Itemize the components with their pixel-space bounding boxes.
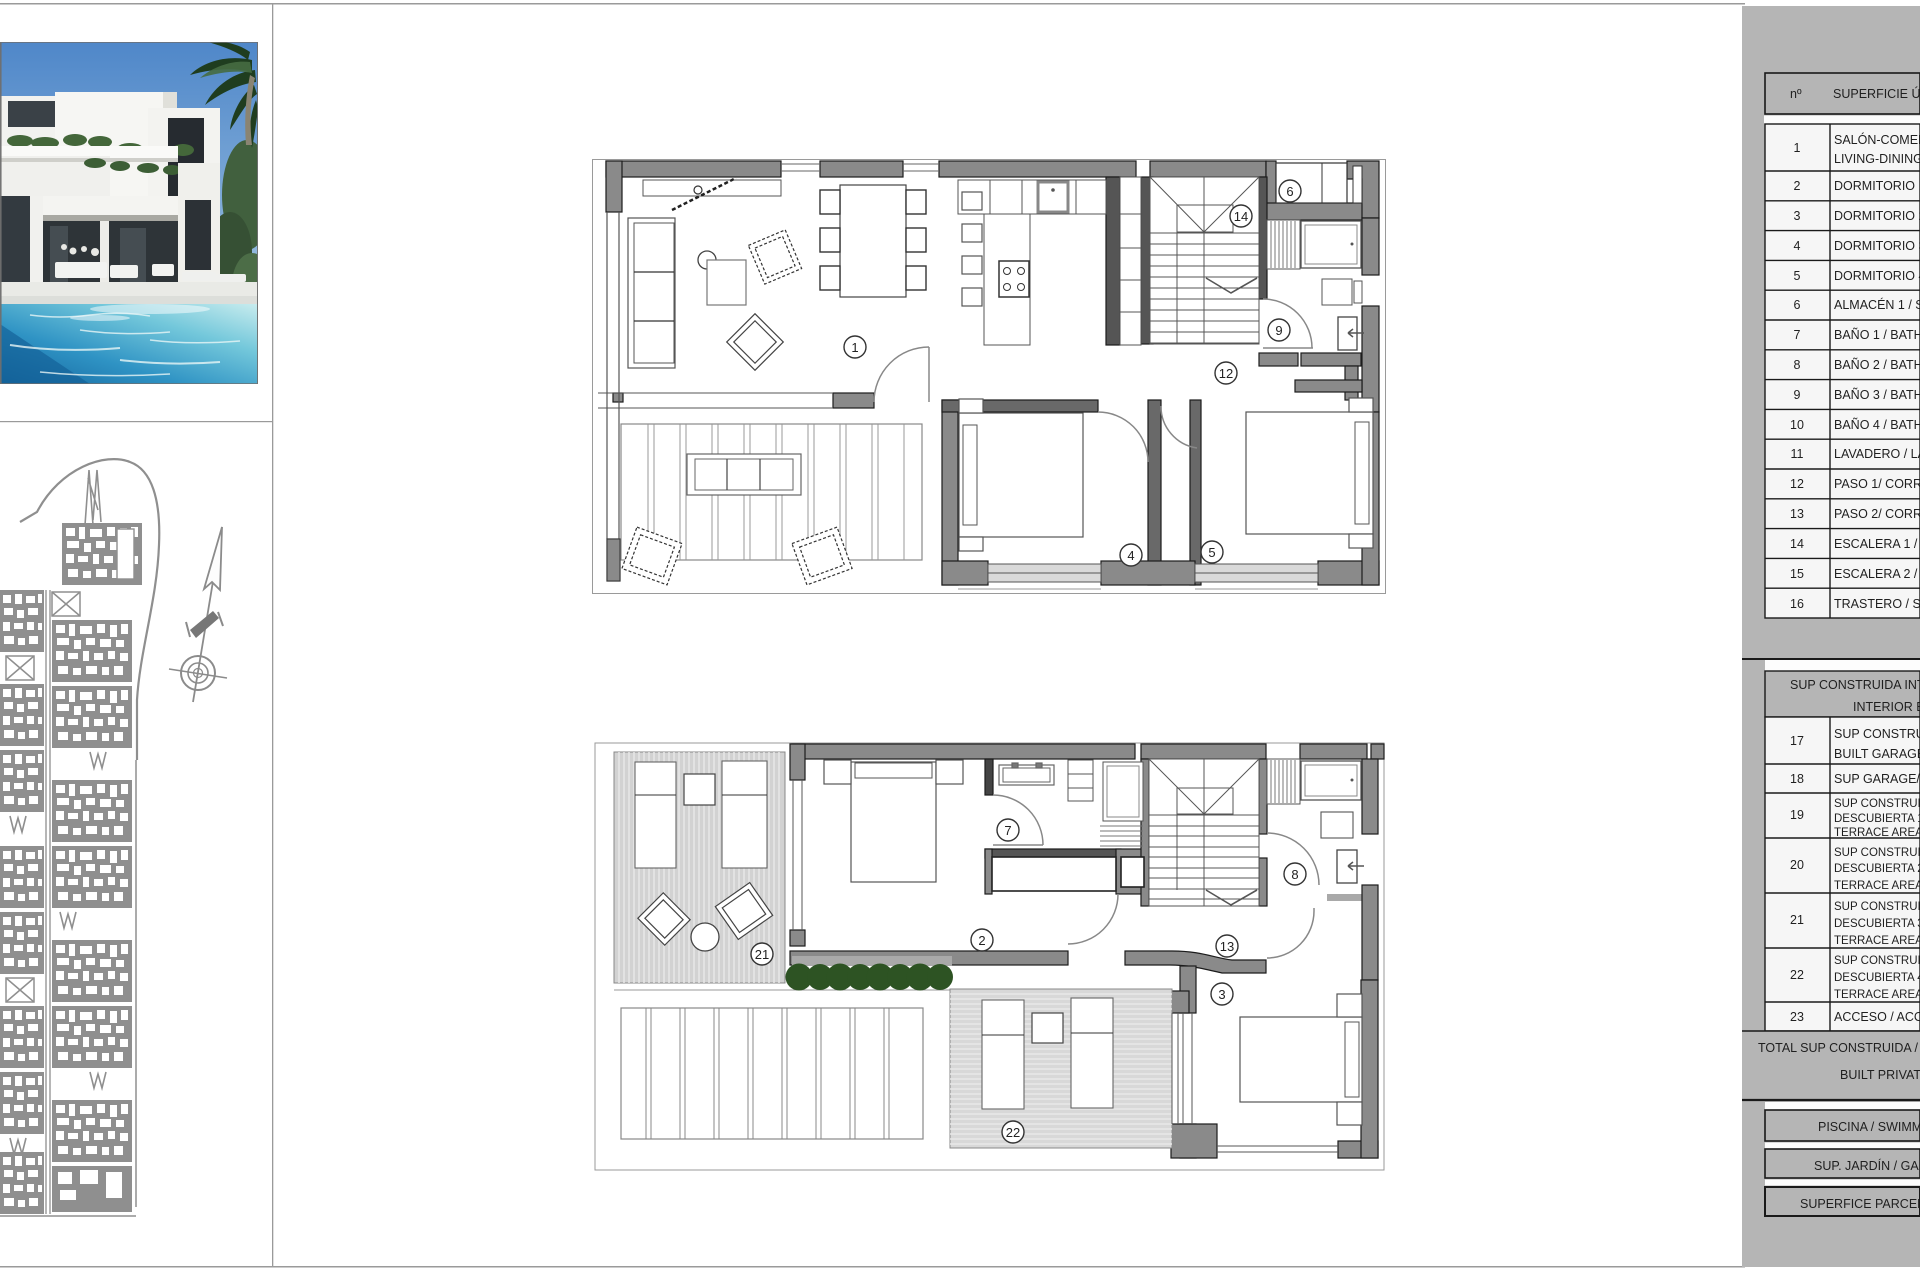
- svg-text:5: 5: [1794, 269, 1801, 283]
- svg-text:2: 2: [978, 933, 985, 948]
- svg-text:12: 12: [1219, 366, 1233, 381]
- svg-text:INTERIOR BUILT AREA: INTERIOR BUILT AREA: [1853, 700, 1920, 714]
- svg-text:5: 5: [1208, 545, 1215, 560]
- svg-text:SUP CONSTRUIDA INTERIOR /: SUP CONSTRUIDA INTERIOR /: [1790, 678, 1920, 692]
- svg-text:SUP CONSTRUIDA TERRAZA: SUP CONSTRUIDA TERRAZA: [1834, 955, 1920, 967]
- svg-text:21: 21: [1790, 913, 1804, 927]
- svg-text:DESCUBIERTA 3 / OPEN: DESCUBIERTA 3 / OPEN: [1834, 918, 1920, 930]
- svg-text:SALÓN-COMEDOR / COCINA: SALÓN-COMEDOR / COCINA: [1834, 132, 1920, 147]
- svg-text:SUP CONSTRUIDA GARAJE /: SUP CONSTRUIDA GARAJE /: [1834, 727, 1920, 741]
- svg-text:14: 14: [1790, 537, 1804, 551]
- svg-text:13: 13: [1220, 939, 1234, 954]
- svg-text:9: 9: [1794, 388, 1801, 402]
- svg-text:23: 23: [1790, 1010, 1804, 1024]
- svg-text:SUP. JARDÍN / GARDEN AREA: SUP. JARDÍN / GARDEN AREA: [1814, 1158, 1920, 1173]
- svg-text:7: 7: [1004, 823, 1011, 838]
- svg-text:3: 3: [1794, 209, 1801, 223]
- svg-text:BUILT PRIVATE AREA: BUILT PRIVATE AREA: [1840, 1068, 1920, 1082]
- svg-text:BAÑO 4 / BATHROOM 4: BAÑO 4 / BATHROOM 4: [1834, 418, 1920, 432]
- svg-text:4: 4: [1127, 548, 1134, 563]
- svg-text:TERRACE AREA 1: TERRACE AREA 1: [1834, 827, 1920, 839]
- svg-text:BUILT GARAGE AREA: BUILT GARAGE AREA: [1834, 747, 1920, 761]
- svg-text:LAVADERO / LAUNDRY: LAVADERO / LAUNDRY: [1834, 447, 1920, 461]
- svg-text:DORMITORIO 1 / BEDROOM 1: DORMITORIO 1 / BEDROOM 1: [1834, 179, 1920, 193]
- svg-text:12: 12: [1790, 477, 1804, 491]
- svg-text:SUPERFICE PARCELA / PLOT: SUPERFICE PARCELA / PLOT: [1800, 1197, 1920, 1211]
- svg-text:ESCALERA 1 / STAIRS 1: ESCALERA 1 / STAIRS 1: [1834, 537, 1920, 551]
- svg-text:DESCUBIERTA 1 / OPEN: DESCUBIERTA 1 / OPEN: [1834, 813, 1920, 825]
- svg-text:SUPERFICIE ÚTIL / USEFUL AREA: SUPERFICIE ÚTIL / USEFUL AREA: [1833, 86, 1920, 101]
- svg-text:SUP CONSTRUIDA TERRAZA: SUP CONSTRUIDA TERRAZA: [1834, 901, 1920, 913]
- svg-text:10: 10: [1790, 418, 1804, 432]
- svg-text:13: 13: [1790, 507, 1804, 521]
- svg-text:1: 1: [851, 340, 858, 355]
- svg-text:ESCALERA 2 / STAIRS 2: ESCALERA 2 / STAIRS 2: [1834, 567, 1920, 581]
- svg-text:3: 3: [1218, 987, 1225, 1002]
- svg-text:SUP CONSTRUIDA TERRAZA: SUP CONSTRUIDA TERRAZA: [1834, 847, 1920, 859]
- svg-text:22: 22: [1790, 968, 1804, 982]
- svg-text:SUP CONSTRUIDA TERRAZA: SUP CONSTRUIDA TERRAZA: [1834, 798, 1920, 810]
- svg-text:TOTAL SUP CONSTRUIDA /: TOTAL SUP CONSTRUIDA /: [1758, 1041, 1919, 1055]
- svg-text:11: 11: [1791, 447, 1804, 461]
- svg-text:8: 8: [1291, 867, 1298, 882]
- svg-text:DORMITORIO 4 / BEDROOM 4: DORMITORIO 4 / BEDROOM 4: [1834, 269, 1920, 283]
- svg-text:7: 7: [1794, 328, 1801, 342]
- svg-text:TRASTERO / STORAGE: TRASTERO / STORAGE: [1834, 597, 1920, 611]
- svg-text:22: 22: [1006, 1125, 1020, 1140]
- svg-text:LIVING-DINING ROOM: LIVING-DINING ROOM: [1834, 152, 1920, 166]
- svg-text:18: 18: [1790, 772, 1804, 786]
- svg-text:PISCINA / SWIMMING POOL: PISCINA / SWIMMING POOL: [1818, 1120, 1920, 1134]
- svg-text:6: 6: [1794, 298, 1801, 312]
- svg-text:DESCUBIERTA 4 / OPEN: DESCUBIERTA 4 / OPEN: [1834, 972, 1920, 984]
- svg-text:DORMITORIO 3 / BEDROOM 3: DORMITORIO 3 / BEDROOM 3: [1834, 239, 1920, 253]
- svg-text:4: 4: [1794, 239, 1801, 253]
- svg-text:nº: nº: [1790, 87, 1802, 101]
- svg-text:6: 6: [1286, 184, 1293, 199]
- svg-text:PASO 2/ CORRIDOR 2: PASO 2/ CORRIDOR 2: [1834, 507, 1920, 521]
- svg-text:TERRACE AREA 4: TERRACE AREA 4: [1834, 989, 1920, 1001]
- svg-text:15: 15: [1790, 567, 1804, 581]
- svg-text:ALMACÉN 1 / STORAGE 1: ALMACÉN 1 / STORAGE 1: [1834, 297, 1920, 312]
- svg-text:TERRACE AREA 2: TERRACE AREA 2: [1834, 880, 1920, 892]
- svg-text:21: 21: [755, 947, 769, 962]
- svg-text:BAÑO 3 / BATHROOM 3: BAÑO 3 / BATHROOM 3: [1834, 388, 1920, 402]
- svg-text:2: 2: [1794, 179, 1801, 193]
- svg-text:17: 17: [1790, 734, 1804, 748]
- svg-text:20: 20: [1790, 858, 1804, 872]
- svg-text:1: 1: [1794, 141, 1801, 155]
- svg-text:14: 14: [1234, 209, 1248, 224]
- svg-text:DORMITORIO 2 / BEDROOM 2: DORMITORIO 2 / BEDROOM 2: [1834, 209, 1920, 223]
- svg-text:16: 16: [1790, 597, 1804, 611]
- svg-text:TERRACE AREA 3: TERRACE AREA 3: [1834, 935, 1920, 947]
- svg-text:BAÑO 2 / BATHROOM 2: BAÑO 2 / BATHROOM 2: [1834, 358, 1920, 372]
- svg-text:SUP GARAGE/ GARAGE AREA: SUP GARAGE/ GARAGE AREA: [1834, 772, 1920, 786]
- svg-text:8: 8: [1794, 358, 1801, 372]
- svg-text:BAÑO 1 / BATHROOM 1: BAÑO 1 / BATHROOM 1: [1834, 328, 1920, 342]
- svg-text:ACCESO / ACCESS: ACCESO / ACCESS: [1834, 1010, 1920, 1024]
- svg-text:DESCUBIERTA 2 / OPEN: DESCUBIERTA 2 / OPEN: [1834, 863, 1920, 875]
- svg-text:19: 19: [1790, 808, 1804, 822]
- svg-text:PASO 1/ CORRIDOR 1: PASO 1/ CORRIDOR 1: [1834, 477, 1920, 491]
- svg-text:9: 9: [1275, 323, 1282, 338]
